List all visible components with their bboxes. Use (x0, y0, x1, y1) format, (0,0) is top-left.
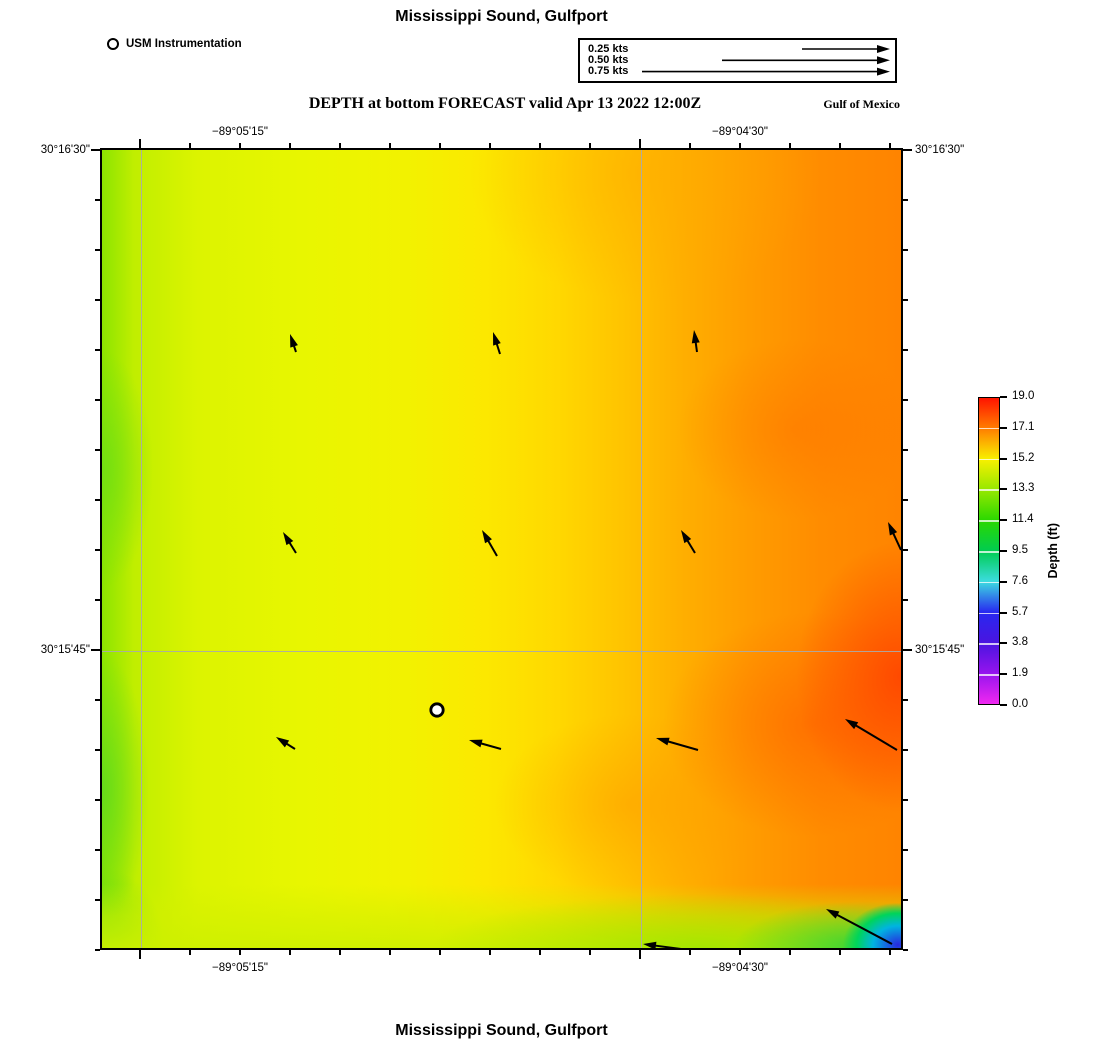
current-vector-head (845, 719, 858, 729)
tick-left (95, 549, 100, 551)
tick-right (903, 699, 908, 701)
tick-bottom (189, 950, 191, 955)
current-vector-shaft (654, 945, 681, 949)
tick-right (903, 899, 908, 901)
colorbar-separator (979, 520, 999, 522)
tick-right (903, 499, 908, 501)
tick-top (739, 143, 741, 148)
colorbar-gradient (978, 397, 1000, 705)
current-vector-head (290, 334, 298, 348)
axis-label-lat-right-bottom: 30°15'45" (915, 644, 964, 656)
current-vector-head (888, 522, 897, 535)
current-vector-head (877, 56, 890, 64)
axis-label-lat-left-bottom: 30°15'45" (2, 644, 90, 656)
colorbar-separator (979, 643, 999, 645)
tick-right (903, 799, 908, 801)
axis-label-lat-right-top: 30°16'30" (915, 144, 964, 156)
colorbar-separator (979, 551, 999, 553)
tick-left (95, 499, 100, 501)
tick-bottom (839, 950, 841, 955)
tick-left (95, 949, 100, 951)
tick-top (889, 143, 891, 148)
tick-left (95, 749, 100, 751)
current-vector-head (826, 909, 839, 919)
colorbar-separator (979, 428, 999, 430)
axis-label-lon-top-right: −89°04'30" (712, 126, 768, 138)
colorbar-tick (1000, 612, 1007, 614)
current-vector-head (877, 68, 890, 76)
colorbar-axis-title: Depth (ft) (1046, 397, 1060, 705)
colorbar-tick (1000, 581, 1007, 583)
tick-left (95, 699, 100, 701)
tick-bottom (739, 950, 741, 955)
tick-bottom (439, 950, 441, 955)
tick-right (903, 349, 908, 351)
tick-left (91, 649, 100, 651)
colorbar-axis-title-text: Depth (ft) (1046, 523, 1060, 579)
tick-bottom (139, 950, 141, 959)
colorbar-tick (1000, 550, 1007, 552)
station-marker-icon (107, 38, 119, 50)
tick-right (903, 649, 912, 651)
colorbar-tick (1000, 519, 1007, 521)
tick-right (903, 149, 912, 151)
tick-bottom (289, 950, 291, 955)
tick-top (639, 139, 641, 148)
colorbar-tick (1000, 642, 1007, 644)
current-vector-head (681, 530, 691, 543)
station-legend-label: USM Instrumentation (126, 38, 242, 50)
map-axes (100, 148, 903, 950)
tick-left (95, 799, 100, 801)
colorbar-tick (1000, 704, 1007, 706)
tick-top (789, 143, 791, 148)
current-vector-head (493, 332, 501, 346)
current-vector-overlay (100, 148, 903, 950)
current-vector-head (469, 740, 483, 748)
tick-left (95, 299, 100, 301)
colorbar-tick-label: 0.0 (1012, 698, 1028, 710)
current-vector-shaft (487, 540, 497, 556)
current-vector-head (283, 532, 293, 545)
tick-right (903, 449, 908, 451)
tick-bottom (489, 950, 491, 955)
tick-bottom (589, 950, 591, 955)
tick-top (489, 143, 491, 148)
tick-left (95, 599, 100, 601)
tick-top (439, 143, 441, 148)
tick-top (139, 139, 141, 148)
tick-top (389, 143, 391, 148)
tick-bottom (639, 950, 641, 959)
tick-bottom (389, 950, 391, 955)
figure-title: Mississippi Sound, Gulfport (100, 8, 903, 26)
colorbar-separator (979, 582, 999, 584)
colorbar-tick-label: 19.0 (1012, 390, 1034, 402)
tick-left (95, 199, 100, 201)
colorbar-separator (979, 674, 999, 676)
current-vector-head (276, 737, 289, 747)
colorbar-tick-label: 3.8 (1012, 636, 1028, 648)
current-vector-shaft (687, 539, 695, 553)
tick-right (903, 199, 908, 201)
tick-right (903, 599, 908, 601)
tick-top (239, 143, 241, 148)
colorbar-tick-label: 17.1 (1012, 421, 1034, 433)
tick-right (903, 249, 908, 251)
colorbar-tick-label: 11.4 (1012, 513, 1034, 525)
current-vector-head (656, 738, 670, 746)
tick-left (95, 249, 100, 251)
tick-left (95, 399, 100, 401)
axis-label-lat-left-top: 30°16'30" (2, 144, 90, 156)
tick-top (189, 143, 191, 148)
tick-bottom (689, 950, 691, 955)
tick-top (839, 143, 841, 148)
tick-right (903, 399, 908, 401)
tick-bottom (339, 950, 341, 955)
colorbar-tick-label: 5.7 (1012, 606, 1028, 618)
tick-left (91, 149, 100, 151)
colorbar-separator (979, 459, 999, 461)
tick-left (95, 899, 100, 901)
station-marker (431, 704, 443, 716)
tick-left (95, 449, 100, 451)
current-vector-head (643, 942, 656, 950)
tick-bottom (539, 950, 541, 955)
tick-right (903, 949, 908, 951)
colorbar-tick-label: 15.2 (1012, 452, 1034, 464)
tick-bottom (889, 950, 891, 955)
current-vector-shaft (893, 532, 901, 550)
colorbar-tick (1000, 427, 1007, 429)
region-label: Gulf of Mexico (740, 97, 900, 112)
tick-left (95, 849, 100, 851)
colorbar-tick-label: 7.6 (1012, 575, 1028, 587)
colorbar-tick (1000, 396, 1007, 398)
tick-bottom (789, 950, 791, 955)
current-vector-shaft (289, 541, 296, 553)
colorbar: Depth (ft) 19.017.115.213.311.49.57.65.7… (978, 397, 1098, 705)
colorbar-tick (1000, 488, 1007, 490)
axis-label-lon-top-left: −89°05'15" (212, 126, 268, 138)
tick-top (539, 143, 541, 148)
tick-top (689, 143, 691, 148)
tick-top (589, 143, 591, 148)
current-vector-shaft (667, 741, 698, 750)
colorbar-tick-label: 1.9 (1012, 667, 1028, 679)
figure-canvas: Mississippi Sound, Gulfport USM Instrume… (0, 0, 1100, 1050)
velocity-scale-legend: 0.25 kts 0.50 kts 0.75 kts (578, 38, 897, 83)
tick-top (289, 143, 291, 148)
tick-left (95, 349, 100, 351)
colorbar-tick (1000, 673, 1007, 675)
tick-top (339, 143, 341, 148)
current-vector-head (692, 330, 700, 343)
figure-bottom-title: Mississippi Sound, Gulfport (100, 1022, 903, 1040)
colorbar-tick-label: 13.3 (1012, 482, 1034, 494)
tick-right (903, 549, 908, 551)
colorbar-separator (979, 489, 999, 491)
tick-right (903, 749, 908, 751)
current-vector-shaft (480, 743, 501, 749)
current-vector-head (877, 45, 890, 53)
current-vector-shaft (836, 914, 892, 944)
current-vector-head (482, 530, 492, 543)
colorbar-tick-label: 9.5 (1012, 544, 1028, 556)
tick-bottom (239, 950, 241, 955)
tick-right (903, 299, 908, 301)
scale-arrows (580, 40, 895, 81)
colorbar-separator (979, 613, 999, 615)
axis-label-lon-bottom-right: −89°04'30" (712, 962, 768, 974)
colorbar-tick (1000, 458, 1007, 460)
current-vector-shaft (854, 725, 897, 750)
tick-right (903, 849, 908, 851)
axis-label-lon-bottom-left: −89°05'15" (212, 962, 268, 974)
